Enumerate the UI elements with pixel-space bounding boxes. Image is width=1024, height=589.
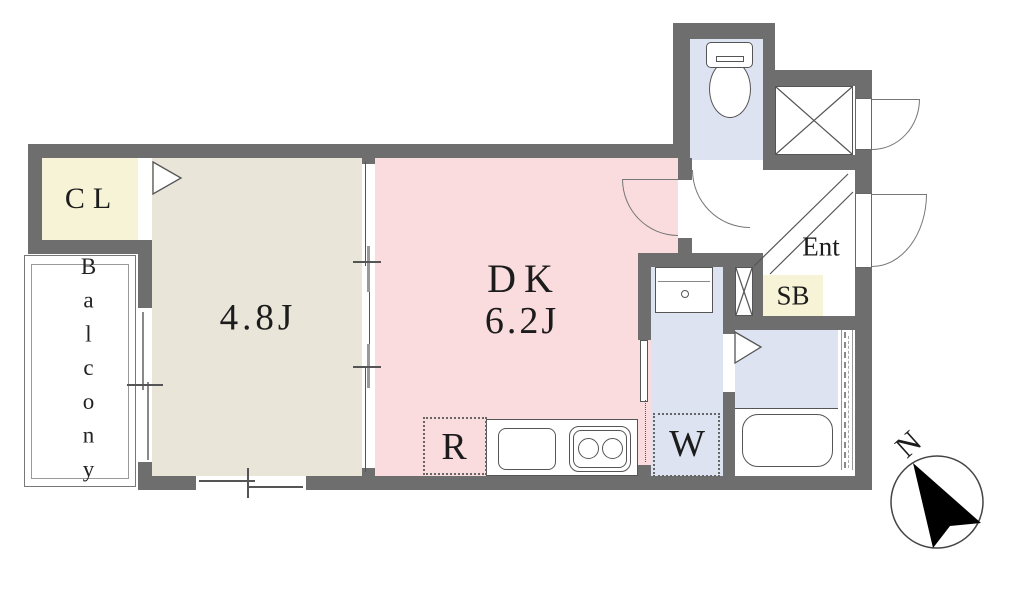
wall-segment xyxy=(855,150,872,193)
dk-label: DK xyxy=(487,259,561,299)
window-pane xyxy=(142,312,144,390)
wall-segment xyxy=(763,155,855,170)
washroom-slider-track xyxy=(645,400,646,462)
compass-circle xyxy=(891,456,983,548)
wall-segment xyxy=(763,39,775,160)
wall-segment xyxy=(723,316,855,330)
bathroom-window xyxy=(841,330,853,470)
window-tick xyxy=(127,384,163,386)
washer-label: W xyxy=(669,425,705,463)
toilet-flush xyxy=(716,56,744,62)
wall-segment xyxy=(138,240,152,310)
wall-segment xyxy=(763,70,872,86)
wall-segment xyxy=(362,468,375,476)
window-tick xyxy=(247,468,249,498)
dk-size-label: 6.2J xyxy=(485,302,559,340)
kitchen-sink-icon xyxy=(498,428,556,470)
wall-segment xyxy=(678,238,692,253)
wall-segment xyxy=(28,240,152,254)
toilet-door-arc xyxy=(692,170,750,228)
partition-tick xyxy=(353,261,381,263)
pipe-space-small xyxy=(735,267,753,316)
wall-segment xyxy=(723,392,735,476)
louver-line xyxy=(848,336,849,468)
closet-label: CL xyxy=(65,184,119,214)
louver-line xyxy=(844,332,846,468)
balcony-label: Balcony xyxy=(75,254,101,490)
refrigerator-label: R xyxy=(441,428,466,466)
window-pane xyxy=(147,382,149,460)
compass xyxy=(891,456,983,548)
wall-segment xyxy=(678,158,692,180)
wall-segment xyxy=(638,267,651,340)
washbasin-line xyxy=(658,281,710,282)
bottom-window xyxy=(196,476,306,490)
wall-segment xyxy=(723,267,735,316)
partition-handle xyxy=(367,246,370,292)
compass-north-label: N xyxy=(889,425,926,463)
wall-segment xyxy=(28,144,682,158)
toilet-tank xyxy=(706,42,753,68)
wall-segment xyxy=(638,465,651,476)
partition-tick xyxy=(353,366,381,368)
main-room-label: 4.8J xyxy=(220,300,297,337)
wall-segment xyxy=(855,86,872,98)
stove-burner xyxy=(578,438,599,459)
stove-burner xyxy=(602,438,623,459)
wall-segment xyxy=(306,476,872,490)
wall-segment xyxy=(138,476,196,490)
window-pane xyxy=(249,486,303,488)
wall-segment xyxy=(673,23,775,39)
shoe-box-label: SB xyxy=(776,283,809,310)
utility-doorway xyxy=(855,98,872,150)
wall-segment xyxy=(753,267,763,316)
washbasin-drain xyxy=(681,290,689,298)
compass-arrow xyxy=(913,463,981,548)
wall-segment xyxy=(638,253,763,267)
bathroom-floor xyxy=(735,330,838,408)
wall-segment xyxy=(723,330,735,334)
utility-door-arc xyxy=(872,99,920,150)
wall-segment xyxy=(855,268,872,490)
toilet-icon xyxy=(709,60,751,118)
wall-segment xyxy=(28,144,42,254)
bathtub-icon xyxy=(742,414,833,467)
entrance-doorway xyxy=(855,193,872,268)
wall-segment xyxy=(362,158,375,164)
floorplan: Balcony xyxy=(0,0,1024,589)
entrance-label: Ent xyxy=(802,234,840,261)
pipe-space-large xyxy=(775,86,853,155)
washroom-slider-panel xyxy=(640,340,648,402)
entrance-door-arc xyxy=(872,194,927,267)
wall-segment xyxy=(673,23,690,158)
